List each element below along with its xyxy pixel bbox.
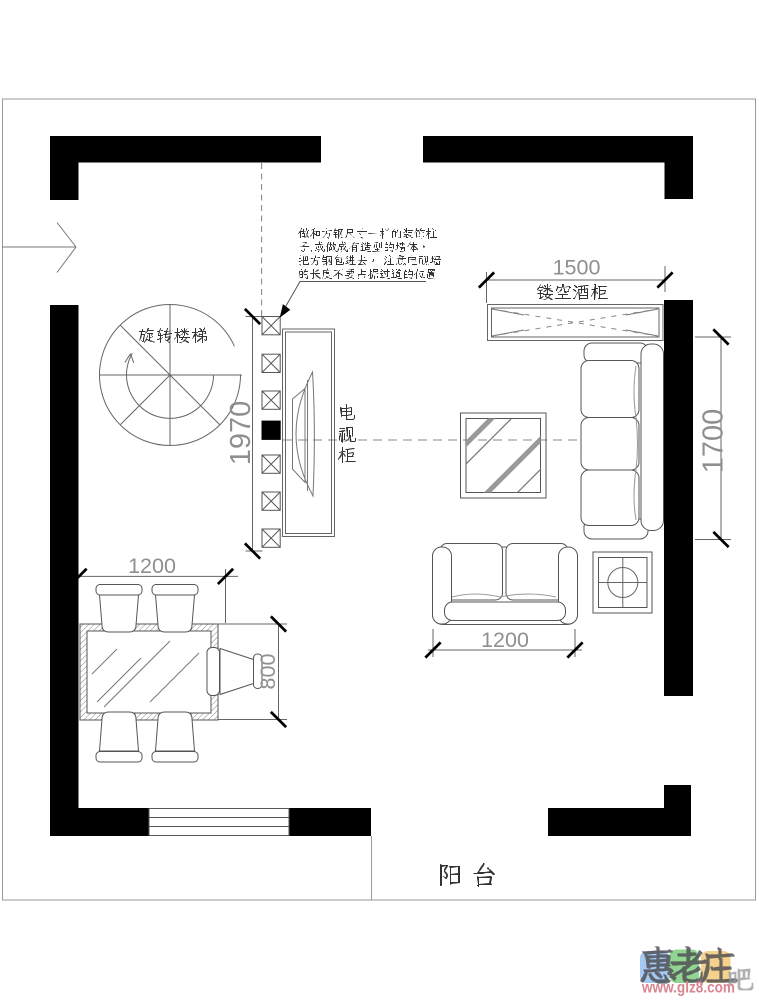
svg-text:www.glz8.com: www.glz8.com — [641, 980, 735, 997]
svg-text:1200: 1200 — [128, 554, 176, 578]
svg-text:1970: 1970 — [225, 401, 257, 466]
svg-text:1200: 1200 — [481, 628, 529, 652]
svg-text:800: 800 — [256, 654, 280, 690]
svg-text:1700: 1700 — [697, 409, 729, 474]
svg-text:1500: 1500 — [553, 256, 601, 280]
